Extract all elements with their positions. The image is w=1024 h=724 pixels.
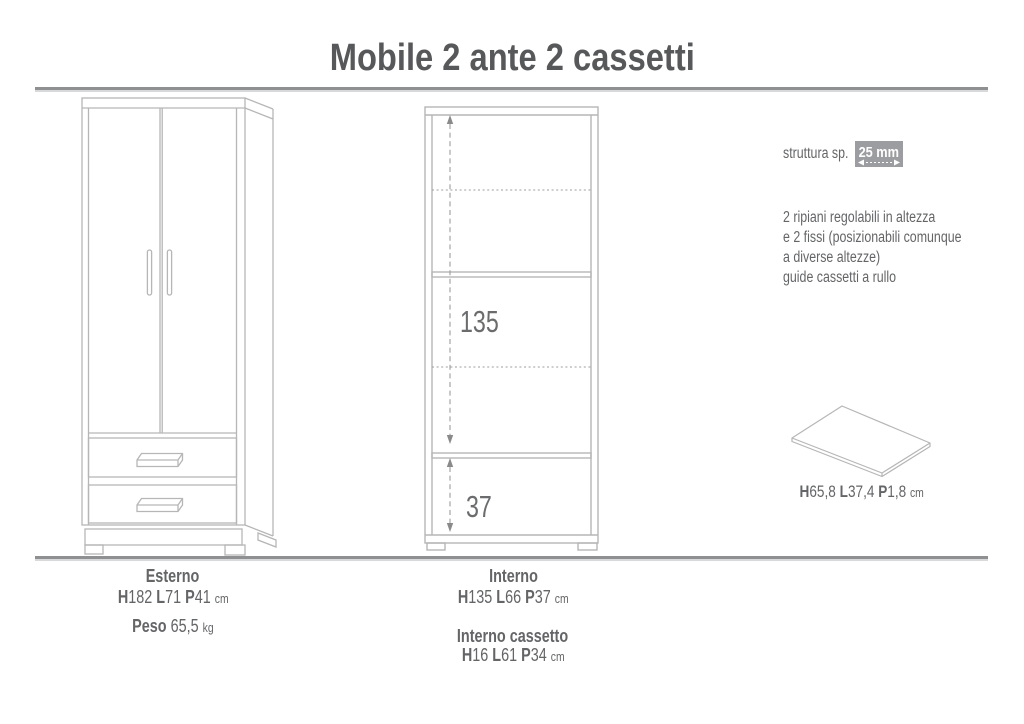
- arrow-up-icon: [447, 458, 453, 467]
- width-arrow-icon: [858, 159, 900, 166]
- interno-cassetto-dimensions: H16 L61 P34 cm: [413, 646, 613, 666]
- fixed-shelf-upper: [432, 272, 591, 277]
- interior-upper-height-label: 135: [460, 304, 499, 339]
- note-line: a diverse altezze): [783, 248, 880, 268]
- fixed-shelf-lower: [432, 453, 591, 458]
- structure-thickness-label: struttura sp.: [783, 141, 865, 167]
- shelf-panel-drawing: [780, 400, 945, 484]
- wardrobe-carcass: [82, 98, 245, 525]
- interno-dimensions: H135 L66 P37 cm: [413, 587, 613, 609]
- shelf-notes: 2 ripiani regolabili in altezza e 2 fiss…: [783, 208, 1006, 288]
- wardrobe-doors: [89, 108, 237, 433]
- right-door-handle: [167, 250, 171, 295]
- interior-structure-drawing: 135 37: [420, 100, 608, 560]
- wardrobe-front-left-foot: [85, 545, 103, 554]
- interno-cassetto-label: Interno cassetto: [413, 627, 613, 646]
- peso-line: Peso 65,5 kg: [73, 616, 273, 638]
- spec-sheet-page: Mobile 2 ante 2 cassetti: [0, 0, 1024, 724]
- interior-lower-height-label: 37: [466, 489, 492, 524]
- note-line: guide cassetti a rullo: [783, 268, 896, 288]
- left-door-handle: [147, 250, 151, 295]
- page-title-text: Mobile 2 ante 2 cassetti: [329, 37, 694, 80]
- arrow-up-icon: [447, 115, 453, 124]
- interior-right-foot: [578, 543, 597, 550]
- interior-carcass: [425, 107, 598, 543]
- wardrobe-drawers: [89, 438, 237, 523]
- wardrobe-front-drawing: [75, 95, 287, 565]
- structure-thickness-badge: 25 mm: [855, 141, 903, 167]
- esterno-section: Esterno H182 L71 P41 cm Peso 65,5 kg: [73, 566, 273, 638]
- esterno-label: Esterno: [73, 566, 273, 587]
- esterno-dimensions: H182 L71 P41 cm: [73, 587, 273, 609]
- page-title: Mobile 2 ante 2 cassetti: [0, 37, 1024, 80]
- wardrobe-front-right-foot: [225, 545, 245, 555]
- interno-section: Interno H135 L66 P37 cm Interno cassetto…: [413, 566, 613, 666]
- top-divider: [35, 87, 988, 90]
- note-line: 2 ripiani regolabili in altezza: [783, 208, 935, 228]
- note-line: e 2 fissi (posizionabili comunque: [783, 228, 962, 248]
- interno-label: Interno: [413, 566, 613, 587]
- arrow-down-icon: [447, 523, 453, 532]
- arrow-down-icon: [447, 435, 453, 444]
- wardrobe-base: [85, 529, 245, 555]
- wardrobe-side-panel: [245, 98, 276, 547]
- interior-left-foot: [427, 543, 445, 550]
- shelf-panel-dimensions: H65,8 L37,4 P1,8 cm: [766, 482, 958, 502]
